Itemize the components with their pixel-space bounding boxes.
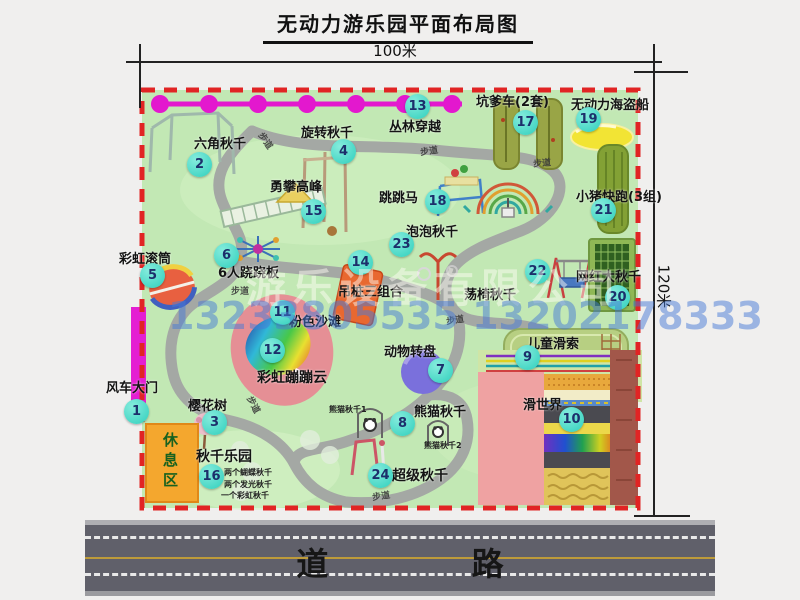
map-canvas: [0, 0, 800, 600]
item-badge-21: 21: [591, 198, 616, 223]
footpath-label: 步道: [419, 143, 439, 158]
panda-swing-2-note: 熊猫秋千2: [424, 440, 462, 451]
item-label-1: 风车大门: [106, 377, 158, 396]
swing-park-detail-1: 两个蝴蝶秋千: [224, 467, 272, 478]
item-label-18: 跳跳马: [379, 187, 418, 206]
item-label-15: 勇攀高峰: [270, 176, 322, 195]
item-badge-8: 8: [390, 411, 415, 436]
item-badge-9: 9: [515, 345, 540, 370]
item-label-14: 吊桩三组合: [338, 281, 403, 300]
item-label-17: 坑爹车(2套): [476, 91, 549, 110]
seesaw-structure: [236, 236, 280, 262]
item-label-7: 动物转盘: [384, 341, 436, 360]
item-label-20: 网红大秋千: [576, 266, 641, 285]
item-badge-3: 3: [202, 410, 227, 435]
swing-park-detail-2: 两个发光秋千: [224, 479, 272, 490]
item-badge-1: 1: [124, 399, 149, 424]
road: 道 路: [85, 520, 715, 596]
item-badge-16: 16: [199, 464, 224, 489]
item-label-8: 熊猫秋千: [414, 401, 466, 420]
footpath-label: 步道: [445, 312, 465, 327]
item-label-21: 小猪快跑(3组): [576, 186, 662, 205]
item-badge-11: 11: [270, 300, 295, 325]
item-label-2: 六角秋千: [194, 133, 246, 152]
park-layout-map: 道 路 无动力游乐园平面布局图 100米 120米 休息区 风车大门 六角秋千 …: [0, 0, 800, 600]
rest-area-label: 休息区: [160, 432, 181, 492]
item-badge-17: 17: [513, 110, 538, 135]
item-label-24: 超级秋千: [392, 465, 448, 485]
item-badge-10: 10: [559, 407, 584, 432]
item-badge-20: 20: [605, 285, 630, 310]
panda-swing-1-note: 熊猫秋千1: [329, 404, 367, 415]
height-dimension-label: 120米: [653, 265, 674, 309]
item-badge-2: 2: [187, 152, 212, 177]
slide-world-structure: [478, 350, 642, 505]
item-badge-4: 4: [331, 139, 356, 164]
item-label-16: 秋千乐园: [196, 446, 252, 466]
item-label-23: 泡泡秋千: [406, 221, 458, 240]
item-label-10: 滑世界: [523, 394, 562, 413]
road-label: 道 路: [85, 539, 715, 585]
item-badge-23: 23: [389, 232, 414, 257]
item-badge-7: 7: [428, 358, 453, 383]
item-badge-24: 24: [368, 463, 393, 488]
item-label-11: 粉色沙滩: [289, 311, 341, 330]
footpath-label: 步道: [371, 488, 391, 503]
item-badge-22: 22: [525, 259, 550, 284]
footpath-label: 步道: [532, 155, 551, 170]
footpath-label: 步道: [231, 284, 249, 297]
page-title: 无动力游乐园平面布局图: [263, 8, 533, 44]
item-badge-14: 14: [348, 250, 373, 275]
item-badge-13: 13: [405, 94, 430, 119]
item-label-12: 彩虹蹦蹦云: [257, 367, 327, 387]
item-label-22: 荡椅秋千: [464, 284, 516, 303]
item-badge-5: 5: [140, 263, 165, 288]
item-badge-18: 18: [425, 189, 450, 214]
item-badge-12: 12: [260, 338, 285, 363]
item-badge-15: 15: [301, 199, 326, 224]
swing-park-detail-3: 一个彩虹秋千: [221, 490, 269, 501]
item-badge-6: 6: [214, 243, 239, 268]
width-dimension-label: 100米: [373, 40, 417, 61]
item-badge-19: 19: [576, 107, 601, 132]
